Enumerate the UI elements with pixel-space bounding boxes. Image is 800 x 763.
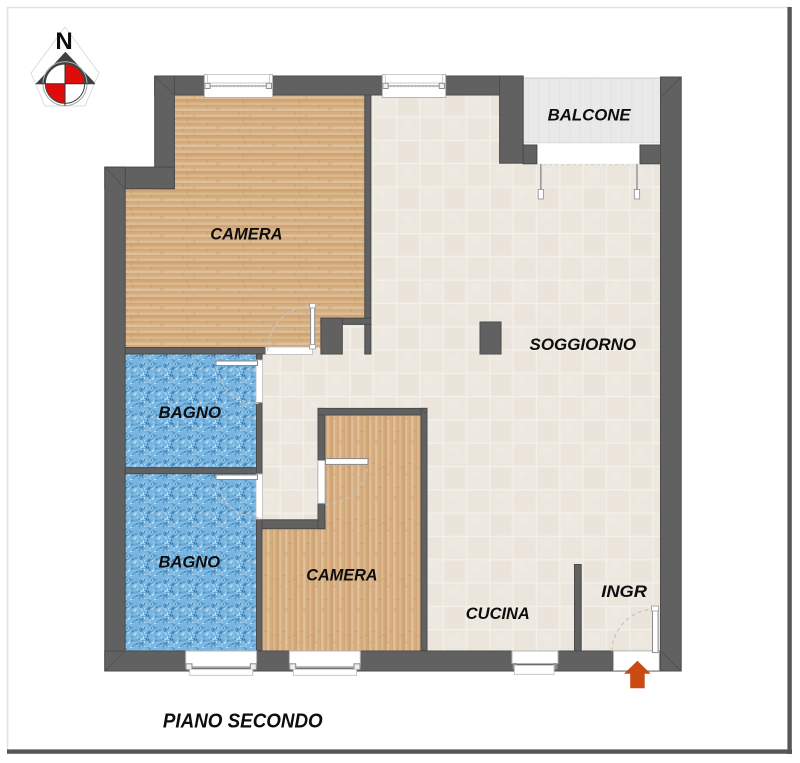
svg-text:CAMERA: CAMERA xyxy=(306,567,377,585)
svg-text:PIANO SECONDO: PIANO SECONDO xyxy=(163,711,323,733)
svg-text:N: N xyxy=(55,28,72,55)
svg-text:CAMERA: CAMERA xyxy=(210,225,282,243)
svg-text:INGR: INGR xyxy=(601,583,647,601)
svg-text:CUCINA: CUCINA xyxy=(466,605,530,623)
svg-text:SOGGIORNO: SOGGIORNO xyxy=(530,336,637,354)
svg-text:BALCONE: BALCONE xyxy=(548,107,632,125)
svg-text:BAGNO: BAGNO xyxy=(159,404,222,422)
svg-text:BAGNO: BAGNO xyxy=(159,554,221,572)
